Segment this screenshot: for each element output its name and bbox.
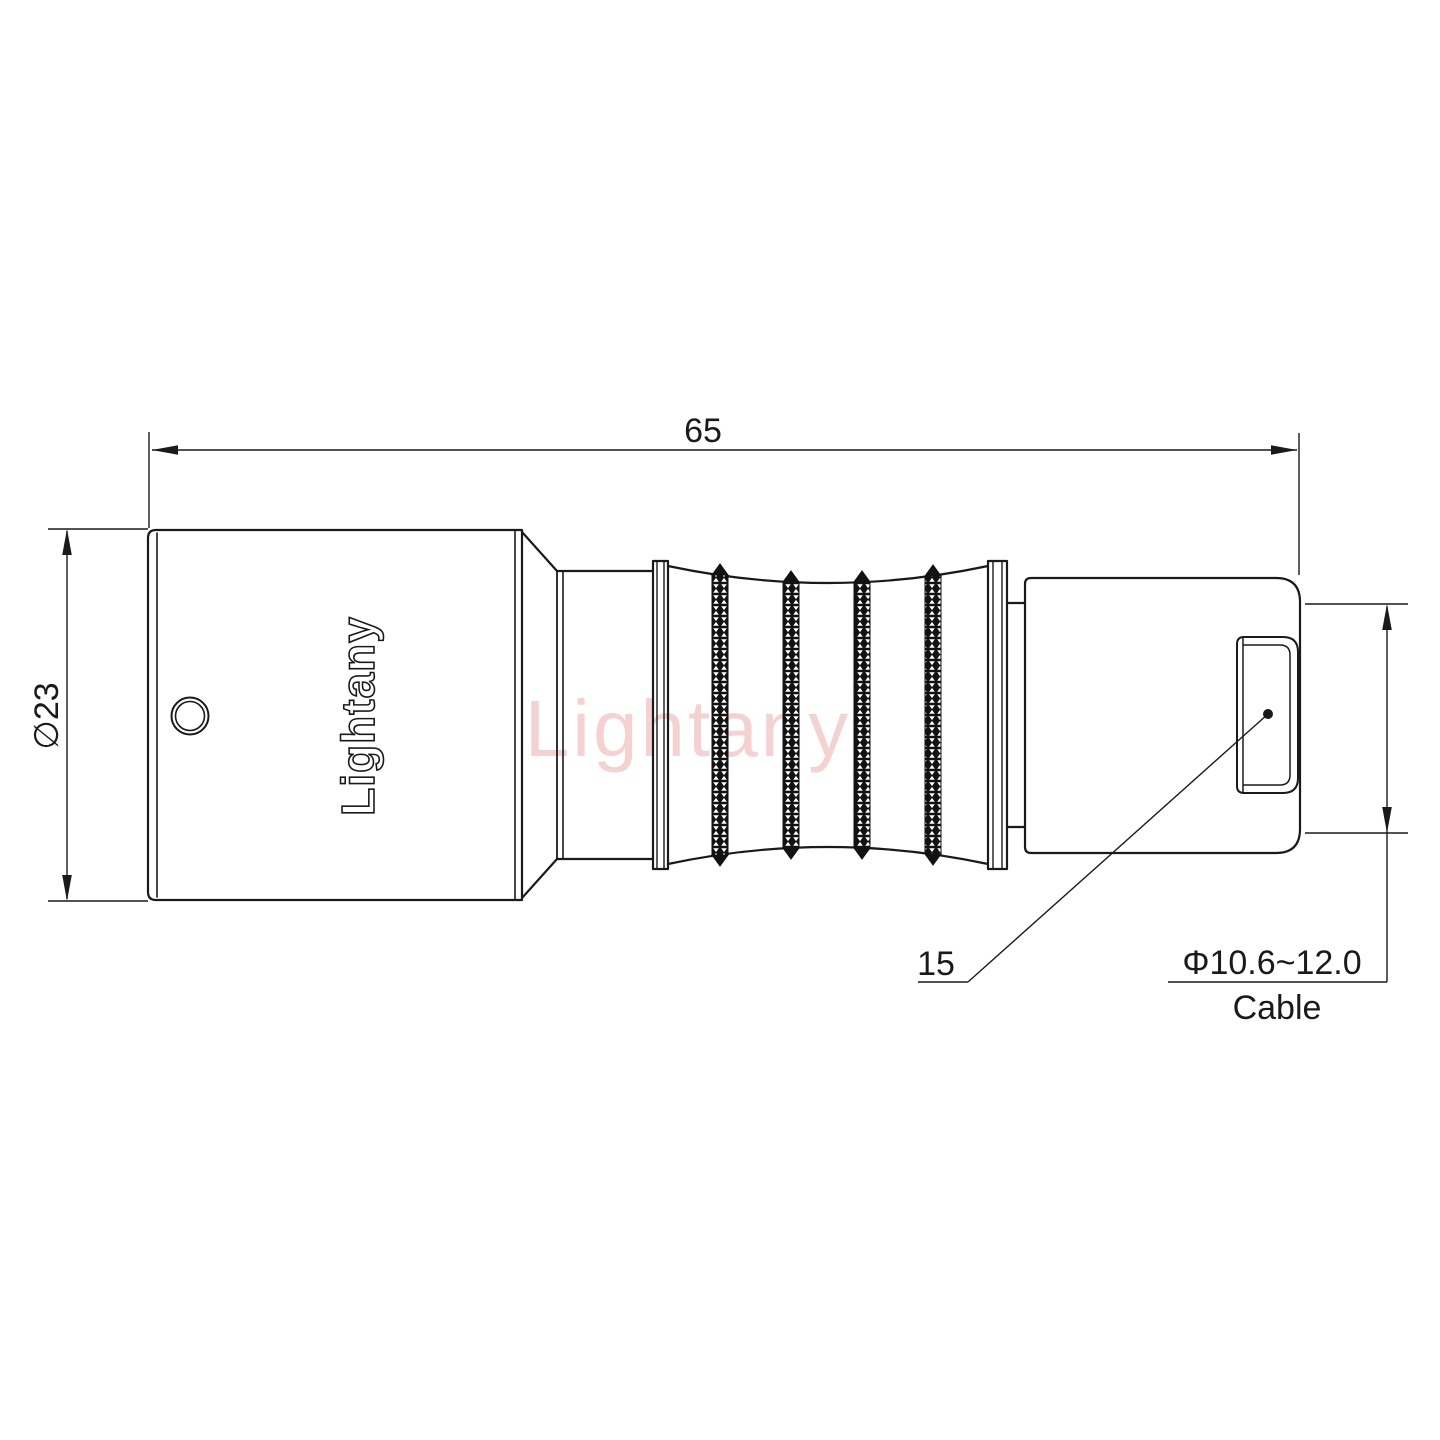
leader-dot <box>1263 709 1273 719</box>
technical-drawing-page: Lightany <box>0 0 1440 1440</box>
dim-text-overall-length: 65 <box>684 412 722 450</box>
knurl-band-3 <box>854 582 870 848</box>
dim-text-cable-label: Cable <box>1233 989 1322 1027</box>
dim-text-nut-length: 15 <box>917 945 955 983</box>
knurl-band-4 <box>925 576 941 854</box>
connector-dimension-drawing: Lightany <box>0 0 1440 1440</box>
watermark-text: Lightany <box>525 684 851 773</box>
dim-text-cable-range: Φ10.6~12.0 <box>1182 944 1361 982</box>
knurl-band-2 <box>783 582 799 848</box>
body-engraving-text: Lightany <box>332 616 384 816</box>
dim-text-body-diameter: ∅23 <box>28 682 66 749</box>
knurl-band-1 <box>712 575 728 855</box>
